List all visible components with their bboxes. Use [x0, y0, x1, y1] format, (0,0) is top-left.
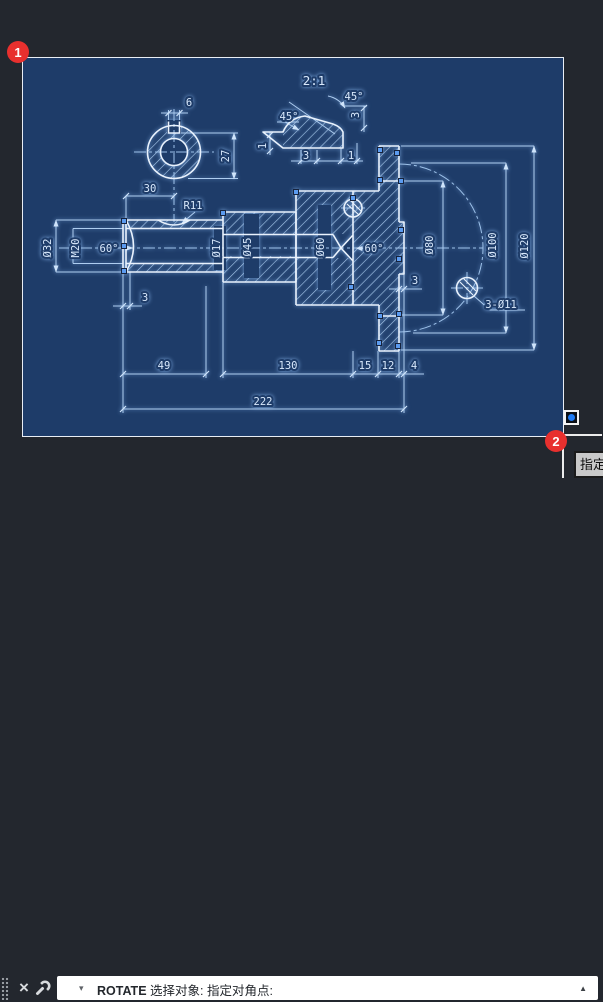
wrench-icon[interactable] — [34, 979, 52, 997]
command-name: ROTATE — [97, 984, 147, 998]
autocad-app: { "colors": { "app_bg": "#23272e", "sele… — [0, 0, 603, 518]
svg-text:3: 3 — [350, 112, 362, 118]
svg-text:49: 49 — [158, 360, 171, 372]
svg-text:130: 130 — [279, 360, 298, 372]
svg-text:Ø120: Ø120 — [519, 233, 531, 258]
svg-text:60°: 60° — [100, 243, 119, 255]
cad-drawing[interactable]: 6272:145°45°313130R11Ø32M2060°Ø17Ø45Ø606… — [23, 58, 563, 436]
expand-command-history-icon[interactable]: ▲ — [579, 984, 587, 993]
cursor-pickbox — [564, 410, 579, 425]
svg-text:Ø17: Ø17 — [211, 239, 223, 258]
svg-text:2:1: 2:1 — [303, 73, 326, 88]
crosshair-horizontal — [563, 434, 602, 436]
svg-text:12: 12 — [382, 360, 395, 372]
command-input[interactable]: ▾ ROTATE 选择对象: 指定对角点: ▲ — [57, 976, 598, 1000]
svg-text:60°: 60° — [365, 243, 384, 255]
svg-text:1: 1 — [348, 150, 354, 162]
svg-text:3-Ø11: 3-Ø11 — [485, 299, 517, 311]
command-bar: × ▾ ROTATE 选择对象: 指定对角点: ▲ — [0, 487, 603, 515]
svg-text:M20: M20 — [70, 239, 82, 258]
drag-handle-icon[interactable] — [1, 977, 9, 1000]
svg-text:15: 15 — [359, 360, 372, 372]
svg-text:Ø60: Ø60 — [315, 238, 327, 257]
dynamic-input-tooltip: 指定 — [574, 451, 603, 478]
svg-text:3: 3 — [303, 150, 309, 162]
svg-text:3: 3 — [412, 275, 418, 287]
annotation-badge-2: 2 — [545, 430, 567, 452]
close-icon[interactable]: × — [15, 977, 33, 999]
annotation-badge-1: 1 — [7, 41, 29, 63]
selection-window[interactable]: 6272:145°45°313130R11Ø32M2060°Ø17Ø45Ø606… — [22, 57, 564, 437]
svg-text:30: 30 — [144, 183, 157, 195]
command-prompt-text: 选择对象: 指定对角点: — [150, 984, 273, 998]
svg-text:1: 1 — [257, 143, 269, 149]
svg-text:Ø100: Ø100 — [487, 232, 499, 257]
svg-text:45°: 45° — [280, 111, 299, 123]
svg-text:Ø80: Ø80 — [424, 236, 436, 255]
svg-text:3: 3 — [142, 292, 148, 304]
svg-text:Ø45: Ø45 — [242, 238, 254, 257]
section-hatching — [126, 116, 404, 351]
drawing-viewport[interactable]: 6272:145°45°313130R11Ø32M2060°Ø17Ø45Ø606… — [0, 0, 603, 487]
svg-text:27: 27 — [220, 150, 232, 163]
svg-text:4: 4 — [411, 360, 417, 372]
svg-text:R11: R11 — [184, 200, 203, 212]
pickbox-dot — [568, 414, 575, 421]
svg-text:Ø32: Ø32 — [42, 239, 54, 258]
svg-text:45°: 45° — [345, 91, 364, 103]
command-prompt: ROTATE 选择对象: 指定对角点: — [97, 980, 273, 999]
svg-text:6: 6 — [186, 97, 192, 109]
command-history-caret-icon[interactable]: ▾ — [79, 983, 84, 994]
svg-text:222: 222 — [254, 396, 273, 408]
